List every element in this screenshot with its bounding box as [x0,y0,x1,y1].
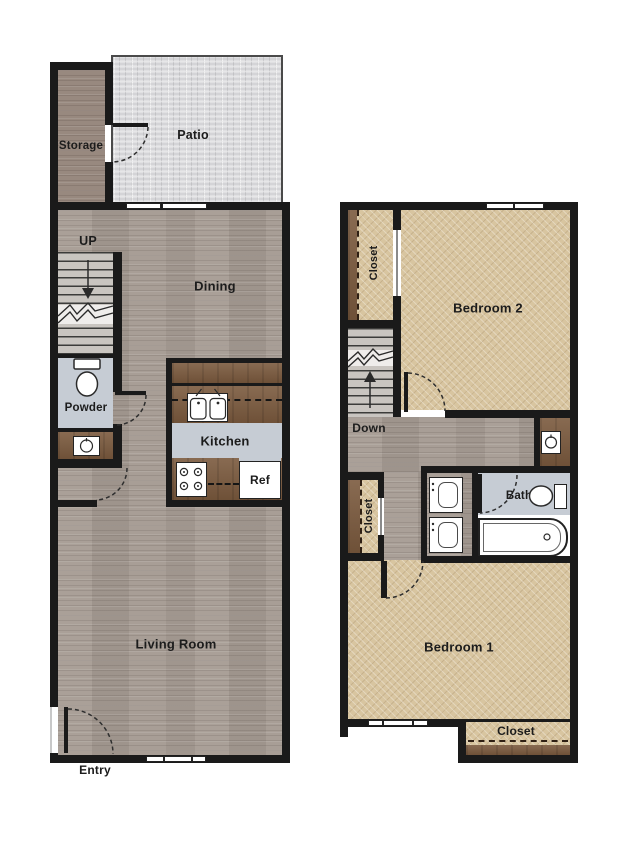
wall-segment [378,480,384,498]
closet-bedroom1-rod [468,740,568,742]
wall-segment [393,320,401,417]
bedroom1-window-pane [368,720,383,726]
hall-nook-sink-basin [541,431,561,454]
floorplan-canvas: Storage Patio UP Dining Powder Kitchen R… [0,0,629,844]
stairs-down [348,328,393,417]
dryer-icon [429,517,463,553]
closet-hall-label: Closet [363,499,375,534]
bathtub-icon [478,518,568,557]
stairs-label-down: Down [352,421,385,435]
wall-segment [340,553,384,561]
closet-hall-shelf [348,480,360,553]
closet-hall-door-leaf [380,498,382,535]
closet-upper-shelf [348,210,357,320]
wall-segment [378,535,384,553]
wall-segment [458,755,578,763]
second-floor-plan: Closet Bedroom 2 Down Closet Bath Bedroo… [0,0,629,844]
closet-bedroom1-shelf [466,745,570,755]
bedroom2-window-pane [514,203,544,209]
wall-segment [466,719,570,722]
closet-upper-door-leaf [396,230,398,296]
washer-door [438,482,458,508]
wall-segment [421,466,427,563]
bedroom1-window-pane [413,720,428,726]
wall-segment [534,417,540,466]
bath-door-leaf [478,474,482,513]
bath-toilet-tank [554,484,567,509]
wall-segment [421,466,578,473]
wall-segment [340,202,348,737]
wall-segment [393,210,401,230]
room-label-bedroom2: Bedroom 2 [453,301,523,316]
hallway-floor [384,472,421,560]
wall-segment [421,556,578,563]
bathtub-basin [483,523,561,552]
bedroom2-door-leaf [404,372,408,412]
bedroom1-door-leaf [381,561,387,598]
bedroom2-window-pane [486,203,514,209]
closet-bedroom1-label: Closet [497,724,535,738]
room-label-bedroom1: Bedroom 1 [424,640,494,655]
washer-icon [429,477,463,513]
bedroom1-window-pane [383,720,413,726]
dryer-door [438,522,458,548]
wall-segment [393,296,401,320]
room-label-bath: Bath [506,490,532,502]
wall-segment [340,472,384,480]
wall-segment [570,202,578,763]
closet-upper-label: Closet [368,246,380,281]
wall-segment [445,410,578,418]
wall-segment [340,320,401,328]
